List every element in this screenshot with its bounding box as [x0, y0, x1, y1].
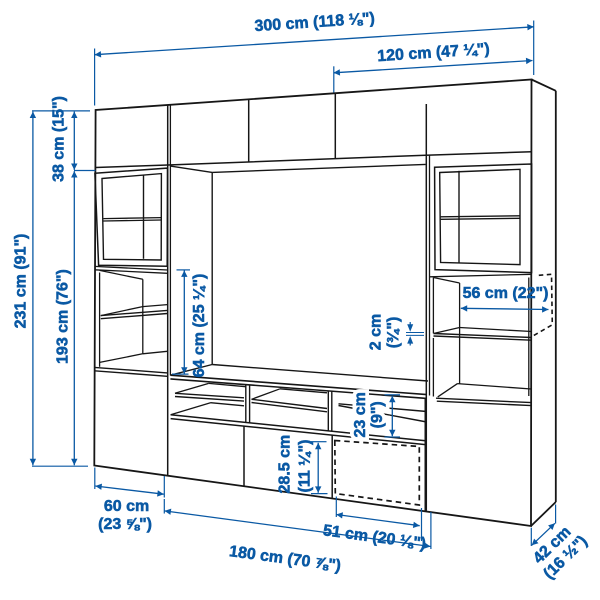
svg-text:38 cm (15"): 38 cm (15"): [51, 96, 68, 182]
svg-text:60 cm: 60 cm: [104, 498, 149, 515]
svg-text:(23 ⅝"): (23 ⅝"): [98, 516, 152, 533]
svg-text:(11 ¼"): (11 ¼"): [296, 440, 313, 493]
svg-text:231 cm (91"): 231 cm (91"): [13, 234, 30, 329]
svg-text:(9"): (9"): [369, 401, 386, 428]
svg-text:28.5 cm: 28.5 cm: [276, 435, 293, 494]
svg-text:(¾"): (¾"): [385, 317, 402, 349]
svg-text:23 cm: 23 cm: [352, 392, 369, 437]
svg-text:2 cm: 2 cm: [368, 314, 385, 350]
svg-text:56 cm (22"): 56 cm (22"): [463, 285, 549, 302]
svg-text:193 cm (76"): 193 cm (76"): [54, 269, 71, 364]
svg-text:64 cm (25 ¼"): 64 cm (25 ¼"): [191, 274, 208, 378]
